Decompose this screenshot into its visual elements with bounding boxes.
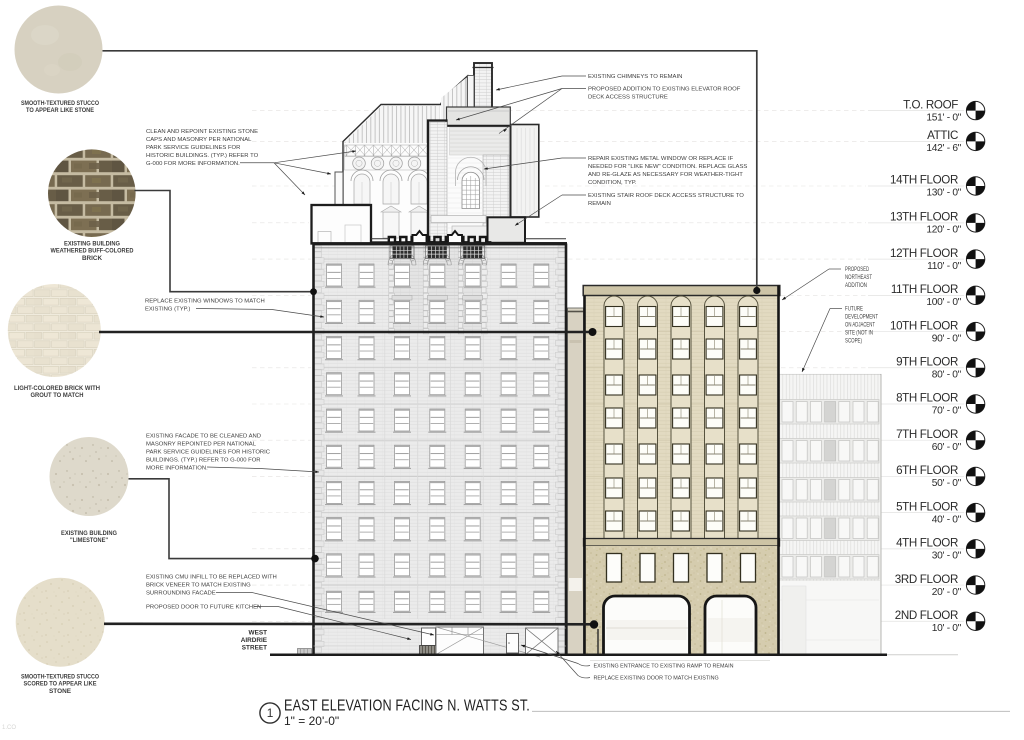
- svg-text:MORE INFORMATION.: MORE INFORMATION.: [146, 466, 208, 472]
- svg-text:2ND FLOOR: 2ND FLOOR: [895, 609, 958, 622]
- svg-text:G-000 FOR MORE INFORMATION.: G-000 FOR MORE INFORMATION.: [146, 161, 240, 167]
- svg-text:DECK ACCESS STRUCTURE: DECK ACCESS STRUCTURE: [588, 95, 668, 101]
- svg-text:EAST ELEVATION FACING N. WATTS: EAST ELEVATION FACING N. WATTS ST.: [284, 697, 530, 714]
- svg-text:MASONRY REPOINTED PER NATIONAL: MASONRY REPOINTED PER NATIONAL: [146, 442, 257, 448]
- svg-text:5TH FLOOR: 5TH FLOOR: [896, 500, 958, 513]
- svg-text:CONDITION, TYP.: CONDITION, TYP.: [588, 180, 637, 186]
- svg-text:PROPOSED: PROPOSED: [845, 266, 869, 273]
- svg-text:PARK SERVICE GUIDELINES FOR HI: PARK SERVICE GUIDELINES FOR HISTORIC: [146, 450, 271, 456]
- svg-text:BRICK VENEER TO MATCH EXISTING: BRICK VENEER TO MATCH EXISTING: [146, 583, 251, 589]
- svg-text:EXISTING ENTRANCE TO EXISTING: EXISTING ENTRANCE TO EXISTING RAMP TO RE…: [594, 664, 734, 670]
- svg-text:3RD FLOOR: 3RD FLOOR: [895, 573, 958, 586]
- svg-text:1: 1: [267, 706, 274, 720]
- svg-text:SMOOTH-TEXTURED STUCCO: SMOOTH-TEXTURED STUCCO: [21, 100, 99, 107]
- svg-text:151' - 0": 151' - 0": [926, 112, 961, 123]
- svg-text:STREET: STREET: [242, 645, 267, 652]
- svg-text:PARK SERVICE GUIDELINES FOR: PARK SERVICE GUIDELINES FOR: [146, 145, 240, 151]
- svg-text:ATTIC: ATTIC: [927, 129, 958, 142]
- svg-text:1" = 20'-0": 1" = 20'-0": [284, 714, 339, 728]
- svg-text:CAPS AND MASONRY PER NATIONAL: CAPS AND MASONRY PER NATIONAL: [146, 137, 252, 143]
- svg-text:9TH FLOOR: 9TH FLOOR: [896, 355, 958, 368]
- svg-text:EXISTING (TYP.): EXISTING (TYP.): [145, 307, 190, 313]
- svg-text:STONE: STONE: [49, 688, 71, 695]
- svg-text:DEVELOPMENT: DEVELOPMENT: [845, 314, 878, 321]
- svg-text:130' - 0": 130' - 0": [926, 188, 961, 199]
- svg-text:70' - 0": 70' - 0": [932, 406, 962, 417]
- svg-text:50' - 0": 50' - 0": [932, 478, 962, 489]
- svg-text:EXISTING BUILDING: EXISTING BUILDING: [61, 530, 117, 537]
- svg-text:NORTHEAST: NORTHEAST: [845, 274, 872, 281]
- svg-text:WEST: WEST: [249, 630, 268, 637]
- svg-text:LIGHT-COLORED BRICK WITH: LIGHT-COLORED BRICK WITH: [14, 385, 100, 392]
- svg-text:110' - 0": 110' - 0": [927, 261, 962, 272]
- svg-text:EXISTING CHIMNEYS TO REMAIN: EXISTING CHIMNEYS TO REMAIN: [588, 74, 682, 80]
- svg-text:EXISTING BUILDING: EXISTING BUILDING: [64, 241, 120, 248]
- svg-text:BRICK: BRICK: [82, 255, 103, 262]
- svg-text:T.O. ROOF: T.O. ROOF: [903, 98, 958, 111]
- svg-text:13TH FLOOR: 13TH FLOOR: [890, 211, 958, 224]
- svg-text:HISTORIC BUILDINGS. (TYP.) REF: HISTORIC BUILDINGS. (TYP.) REFER TO: [146, 153, 259, 159]
- svg-text:12TH FLOOR: 12TH FLOOR: [890, 247, 958, 260]
- svg-text:WEATHERED BUFF-COLORED: WEATHERED BUFF-COLORED: [51, 248, 134, 255]
- svg-text:60' - 0": 60' - 0": [932, 442, 962, 453]
- svg-text:20' - 0": 20' - 0": [932, 587, 962, 598]
- svg-text:10' - 0": 10' - 0": [932, 623, 962, 634]
- svg-text:ON ADJACENT: ON ADJACENT: [845, 322, 875, 329]
- svg-text:CLEAN AND REPOINT EXISTING STO: CLEAN AND REPOINT EXISTING STONE: [146, 129, 258, 135]
- svg-text:SCOPE): SCOPE): [845, 338, 862, 345]
- svg-text:PROPOSED DOOR TO FUTURE KITCHE: PROPOSED DOOR TO FUTURE KITCHEN: [146, 605, 261, 611]
- svg-text:REPAIR EXISTING METAL WINDOW O: REPAIR EXISTING METAL WINDOW OR REPLACE …: [588, 156, 734, 162]
- svg-text:90' - 0": 90' - 0": [932, 333, 962, 344]
- svg-text:NEEDED FOR "LIKE NEW" CONDITIO: NEEDED FOR "LIKE NEW" CONDITION. REPLACE…: [588, 164, 747, 170]
- svg-text:14TH FLOOR: 14TH FLOOR: [890, 174, 958, 187]
- svg-text:80' - 0": 80' - 0": [932, 369, 962, 380]
- svg-text:EXISTING STAIR ROOF DECK ACCES: EXISTING STAIR ROOF DECK ACCESS STRUCTUR…: [588, 193, 744, 199]
- svg-text:GROUT TO MATCH: GROUT TO MATCH: [31, 392, 85, 399]
- svg-text:"LIMESTONE": "LIMESTONE": [70, 537, 108, 544]
- svg-text:EXISTING FACADE TO BE CLEANED: EXISTING FACADE TO BE CLEANED AND: [146, 434, 261, 440]
- svg-text:SCORED TO APPEAR LIKE: SCORED TO APPEAR LIKE: [24, 681, 97, 688]
- svg-text:SMOOTH-TEXTURED STUCCO: SMOOTH-TEXTURED STUCCO: [21, 674, 99, 681]
- svg-text:TO APPEAR LIKE STONE: TO APPEAR LIKE STONE: [26, 107, 94, 114]
- svg-text:BUILDINGS. (TYP.) REFER TO G-0: BUILDINGS. (TYP.) REFER TO G-000 FOR: [146, 458, 261, 464]
- svg-text:8TH FLOOR: 8TH FLOOR: [896, 392, 958, 405]
- svg-text:REPLACE EXISTING DOOR TO MATCH: REPLACE EXISTING DOOR TO MATCH EXISTING: [594, 676, 719, 682]
- svg-text:1.CO: 1.CO: [2, 725, 16, 731]
- svg-text:30' - 0": 30' - 0": [932, 551, 962, 562]
- svg-text:PROPOSED ADDITION TO EXISTING: PROPOSED ADDITION TO EXISTING ELEVATOR R…: [588, 87, 741, 93]
- svg-text:4TH FLOOR: 4TH FLOOR: [896, 537, 958, 550]
- svg-text:120' - 0": 120' - 0": [926, 225, 961, 236]
- svg-text:AIRDRIE: AIRDRIE: [241, 637, 268, 644]
- svg-text:EXISTING CMU INFILL TO BE REPL: EXISTING CMU INFILL TO BE REPLACED WITH: [146, 575, 277, 581]
- svg-text:SITE (NOT IN: SITE (NOT IN: [845, 330, 873, 337]
- svg-text:142' - 6": 142' - 6": [926, 143, 961, 154]
- svg-text:100' - 0": 100' - 0": [926, 297, 961, 308]
- svg-text:11TH FLOOR: 11TH FLOOR: [891, 283, 958, 296]
- svg-text:10TH FLOOR: 10TH FLOOR: [890, 319, 958, 332]
- svg-text:6TH FLOOR: 6TH FLOOR: [896, 464, 958, 477]
- svg-text:FUTURE: FUTURE: [845, 306, 863, 313]
- svg-text:AND RE-GLAZE AS NECESSARY FOR: AND RE-GLAZE AS NECESSARY FOR WEATHER-TI…: [588, 172, 743, 178]
- svg-text:40' - 0": 40' - 0": [932, 514, 962, 525]
- svg-text:REPLACE EXISTING WINDOWS TO MA: REPLACE EXISTING WINDOWS TO MATCH: [145, 299, 265, 305]
- svg-text:REMAIN: REMAIN: [588, 201, 611, 207]
- svg-text:7TH FLOOR: 7TH FLOOR: [896, 428, 958, 441]
- svg-text:ADDITION: ADDITION: [845, 282, 867, 289]
- svg-text:SURROUNDING FACADE: SURROUNDING FACADE: [146, 591, 216, 597]
